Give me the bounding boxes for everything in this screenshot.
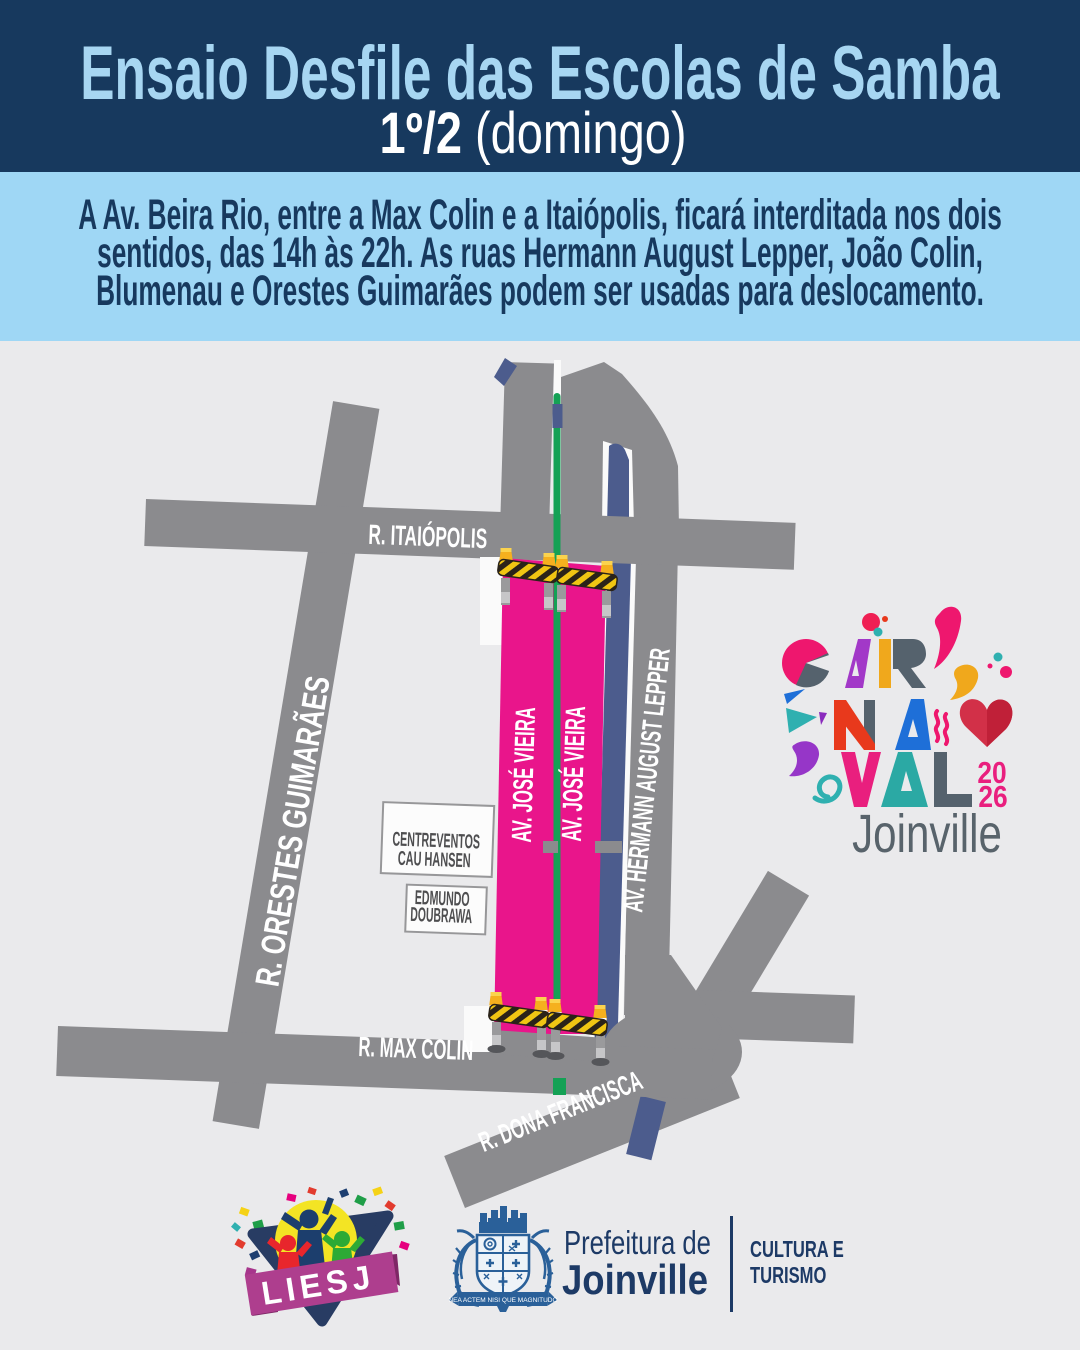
svg-text:DOUBRAWA: DOUBRAWA — [410, 905, 473, 928]
svg-text:R. ITAIÓPOLIS: R. ITAIÓPOLIS — [368, 517, 488, 554]
svg-text:Joinville: Joinville — [562, 1257, 708, 1304]
svg-text:CAU HANSEN: CAU HANSEN — [397, 847, 471, 872]
svg-text:CULTURA E: CULTURA E — [750, 1237, 844, 1262]
svg-text:AV. JOSÉ VIEIRA: AV. JOSÉ VIEIRA — [554, 705, 591, 842]
svg-text:Joinville: Joinville — [852, 804, 1002, 864]
svg-text:R. MAX COLIN: R. MAX COLIN — [358, 1030, 474, 1066]
svg-text:NEA ACTEM NISI QUE MAGNITUDO: NEA ACTEM NISI QUE MAGNITUDO — [448, 1297, 557, 1304]
svg-text:AV. JOSÉ VIEIRA: AV. JOSÉ VIEIRA — [504, 706, 541, 843]
svg-text:TURISMO: TURISMO — [750, 1263, 826, 1288]
